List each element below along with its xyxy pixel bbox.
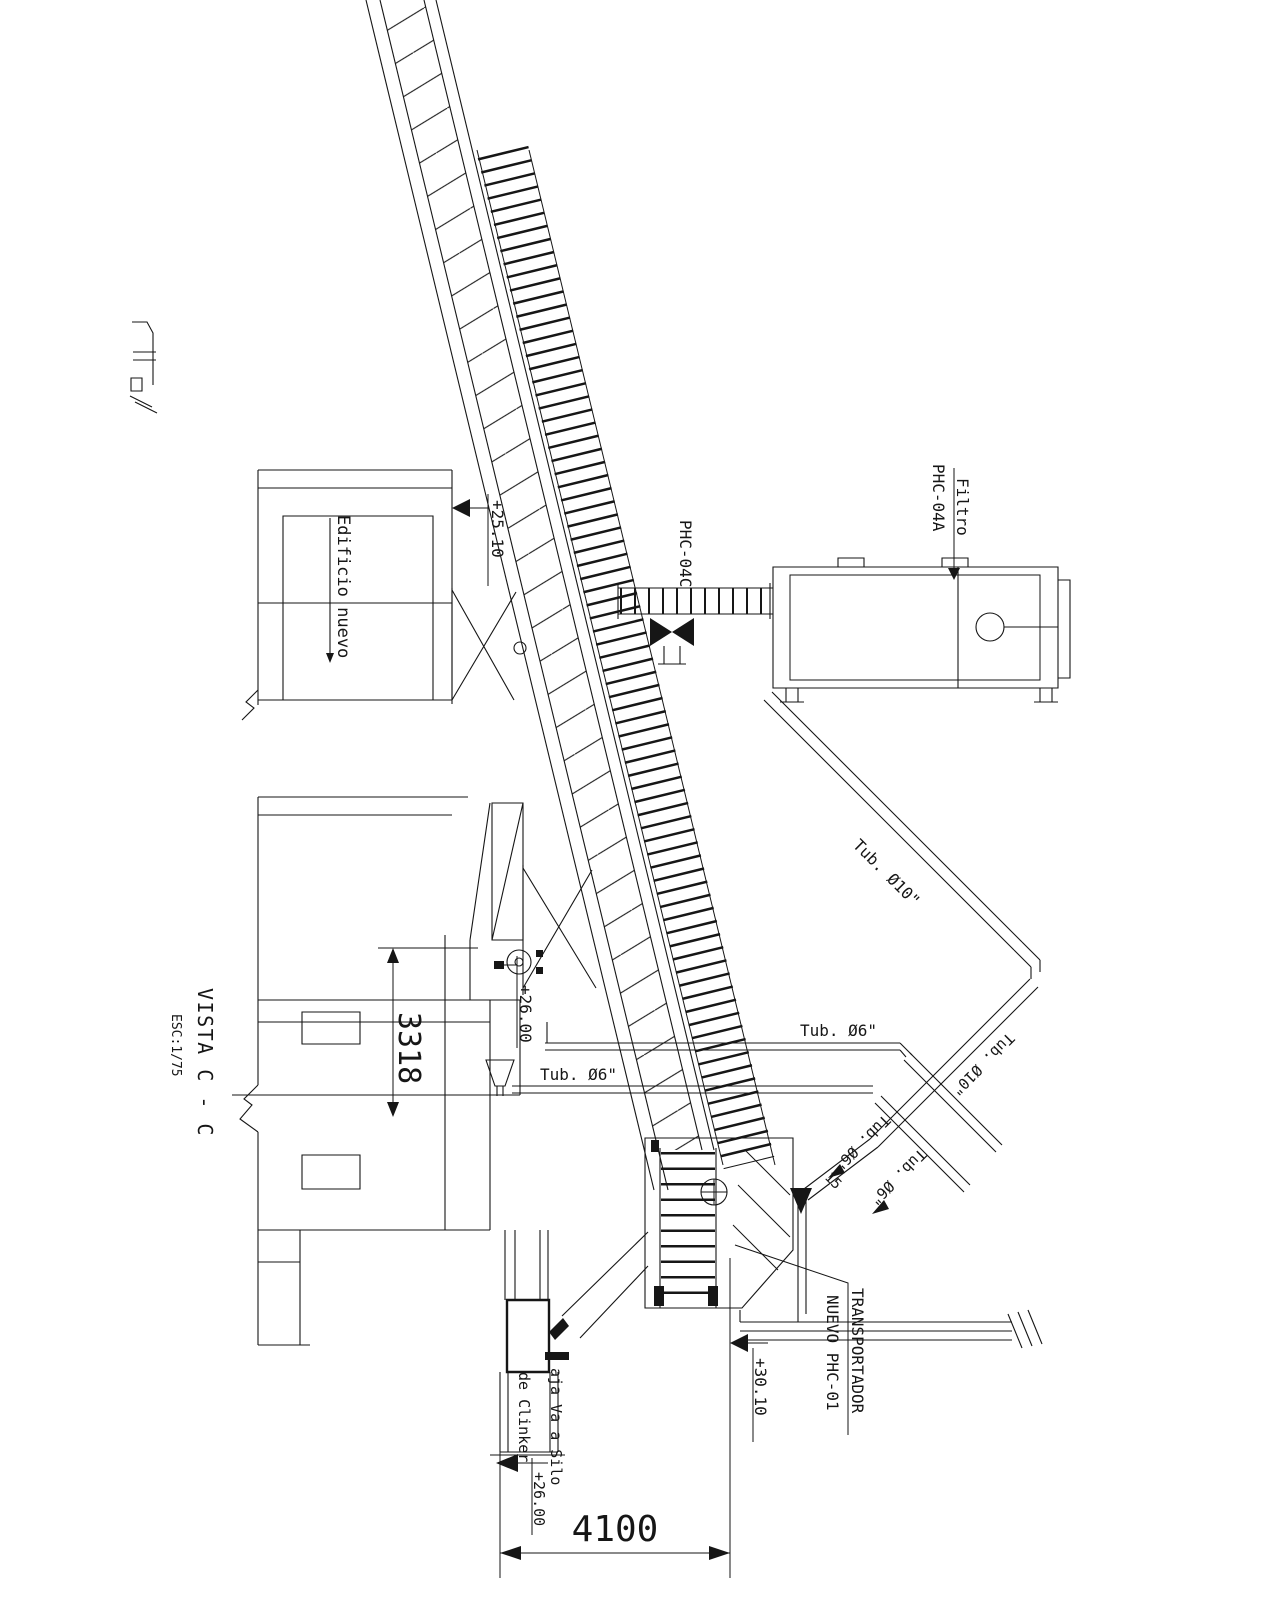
pipe6-d1-label: Tub. Ø6" bbox=[830, 1111, 894, 1175]
break-symbol bbox=[130, 322, 157, 413]
view-title: VISTA C - C bbox=[193, 988, 217, 1137]
transporter-label-line1: TRANSPORTADOR bbox=[848, 1288, 867, 1414]
building-main bbox=[232, 797, 548, 1345]
elevation-marker bbox=[730, 1334, 748, 1352]
pipe10-label: Tub. Ø10" bbox=[849, 835, 924, 910]
pipe6-h1-label: Tub. Ø6" bbox=[800, 1021, 877, 1040]
elevation-marker bbox=[496, 1454, 518, 1472]
pipe10-d2-label: Tub. Ø10" bbox=[948, 1029, 1018, 1099]
filter-port bbox=[976, 613, 1004, 641]
elevation-pipe: +30.10 bbox=[751, 1358, 770, 1416]
elevation-marker bbox=[452, 499, 470, 517]
inclined-conveyor bbox=[366, 0, 775, 1190]
rotary-valve bbox=[650, 618, 672, 646]
pipe-10in bbox=[764, 692, 1022, 950]
screw-conveyor-label: PHC-04C bbox=[676, 520, 695, 587]
elevation-building: +25.10 bbox=[488, 500, 507, 558]
pipe6-d2-label: Tub. Ø6" bbox=[866, 1145, 930, 1209]
label-arrow bbox=[326, 653, 334, 663]
tail-pulley bbox=[507, 950, 531, 974]
elevation-marker bbox=[494, 961, 504, 969]
chute-label-line1: aja Va a Silo bbox=[547, 1368, 565, 1485]
view-scale: ESC:1/75 bbox=[168, 1014, 183, 1077]
screw-conveyor-phc04c bbox=[618, 583, 773, 664]
discharge-chute bbox=[562, 1232, 648, 1338]
elevation-chute: +26.00 bbox=[530, 1472, 548, 1526]
pipe6-h2-label: Tub. Ø6" bbox=[540, 1065, 617, 1084]
chute-box bbox=[507, 1300, 549, 1372]
filter-label-line1: Filtro bbox=[953, 478, 972, 536]
pipe-bundle bbox=[740, 1310, 1012, 1340]
drawing-sheet: Edificio nuevo +25.10 Filtro PHC-04A PHC… bbox=[0, 0, 1280, 1600]
elevation-tail: +26.00 bbox=[516, 985, 535, 1043]
filter-label-line2: PHC-04A bbox=[929, 464, 948, 532]
drawing-canvas: Edificio nuevo +25.10 Filtro PHC-04A PHC… bbox=[0, 0, 1280, 1600]
pipes bbox=[486, 692, 1042, 1348]
filter-phc04a bbox=[773, 558, 1070, 702]
dim-3318: 3318 bbox=[391, 1012, 426, 1084]
dim-4100: 4100 bbox=[572, 1509, 659, 1550]
pipe-6in-lower bbox=[512, 1086, 873, 1093]
window-opening bbox=[302, 1012, 360, 1044]
chute-label-line2: de Clinker bbox=[515, 1372, 533, 1462]
transporter-label-line2: NUEVO PHC-01 bbox=[823, 1295, 842, 1411]
building-new-label: Edificio nuevo bbox=[333, 515, 353, 658]
window-opening bbox=[302, 1155, 360, 1189]
